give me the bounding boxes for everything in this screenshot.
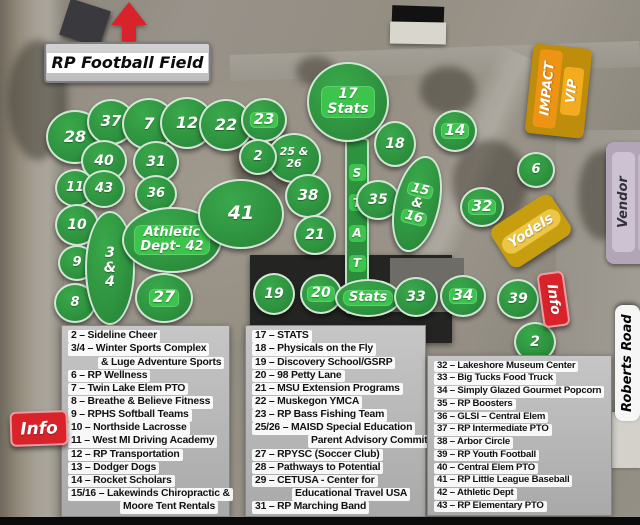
legend-entry: Moore Tent Rentals — [68, 501, 225, 514]
booth-label: 41 — [228, 204, 254, 224]
legend-entry: 14 – Rocket Scholars — [68, 475, 225, 488]
legend-entry: 18 – Physicals on the Fly — [252, 343, 421, 356]
legend-entry: 7 – Twin Lake Elem PTO — [68, 383, 225, 396]
booth-label: 16 — [399, 208, 428, 228]
legend-entry: 8 – Breathe & Believe Fitness — [68, 396, 225, 409]
booth-label: 11 — [66, 181, 84, 195]
booth-33: 33 — [394, 277, 438, 317]
vendor-label: Vendor — [612, 152, 635, 252]
booth-19: 19 — [253, 273, 295, 315]
booth-label: 20 — [307, 286, 334, 302]
north-arrow-icon — [111, 2, 147, 42]
roberts-road-sign: Roberts Road — [615, 305, 640, 421]
booth-label: 39 — [508, 292, 527, 307]
legend-entry: 33 – Big Tucks Food Truck — [434, 373, 607, 386]
booth-label: 38 — [298, 188, 319, 204]
booth-label: 35 — [368, 193, 387, 208]
booth-label: 22 — [215, 117, 237, 134]
info-marker-left: Info — [9, 410, 68, 447]
legend-panel-2: 17 – STATS18 – Physicals on the Fly19 – … — [245, 325, 426, 517]
booth-label: 34 — [449, 288, 478, 305]
legend-entry: 38 – Arbor Circle — [434, 437, 607, 450]
legend-entry: 3/4 – Winter Sports Complex — [68, 343, 225, 356]
legend-entry: 34 – Simply Glazed Gourmet Popcorn — [434, 386, 607, 399]
booth-label: 4 — [105, 275, 115, 290]
booth-label: 23 — [250, 112, 279, 129]
booth-label: 10 — [67, 218, 86, 233]
booth-label: 17Stats — [321, 86, 374, 118]
booth-stats-south: Stats — [335, 279, 401, 317]
booth-6: 6 — [517, 152, 555, 188]
legend-entry: 11 – West MI Driving Academy — [68, 435, 225, 448]
arrow-shaft — [122, 25, 136, 41]
booth-label: 32 — [468, 199, 497, 216]
legend-entry: 10 – Northside Lacrosse — [68, 422, 225, 435]
legend-panel-3: 32 – Lakeshore Museum Center33 – Big Tuc… — [427, 355, 612, 516]
legend-entry: 20 – 98 Petty Lane — [252, 369, 421, 382]
legend-entry: 21 – MSU Extension Programs — [252, 383, 421, 396]
booth-label: & — [104, 261, 116, 276]
legend-entry: 6 – RP Wellness — [68, 369, 225, 382]
football-field-sign: RP Football Field — [44, 42, 211, 83]
booth-label: 8 — [70, 296, 79, 310]
legend-entry: 27 – RPYSC (Soccer Club) — [252, 448, 421, 461]
booth-label: 26 — [286, 158, 301, 170]
impact-label: IMPACT — [532, 49, 563, 129]
booth-label: 12 — [176, 115, 198, 132]
arrow-head — [111, 2, 147, 25]
legend-entry: 13 – Dodger Dogs — [68, 461, 225, 474]
booth-label: 31 — [146, 155, 165, 170]
booth-21: 21 — [294, 215, 336, 255]
legend-entry: 9 – RPHS Softball Teams — [68, 409, 225, 422]
booth-label: 43 — [95, 182, 113, 196]
legend-entry: 37 – RP Intermediate PTO — [434, 424, 607, 437]
booth-label: 9 — [72, 256, 81, 270]
legend-entry: 28 – Pathways to Potential — [252, 461, 421, 474]
legend-entry: 25/26 – MAISD Special Education — [252, 422, 421, 435]
booth-label: 6 — [531, 163, 540, 177]
booth-39: 39 — [497, 279, 539, 319]
booth-label: 18 — [385, 137, 404, 152]
legend-entry: & Luge Adventure Sports — [68, 356, 225, 369]
legend-entry: 41 – RP Little League Baseball — [434, 475, 607, 488]
booth-27: 27 — [135, 273, 193, 323]
booth-18: 18 — [374, 121, 416, 167]
booth-34: 34 — [440, 275, 486, 317]
booth-label: 3 — [105, 246, 115, 261]
legend-entry: 12 – RP Transportation — [68, 448, 225, 461]
legend-entry: 17 – STATS — [252, 330, 421, 343]
booth-label: 2 — [253, 150, 262, 164]
booth-label: 37 — [101, 114, 122, 130]
legend-entry: 43 – RP Elementary PTO — [434, 500, 607, 513]
legend-entry: 29 – CETUSA - Center for — [252, 475, 421, 488]
booth-32: 32 — [460, 187, 504, 227]
legend-entry: 31 – RP Marching Band — [252, 501, 421, 514]
bottom-bar — [0, 517, 640, 525]
booth-label: Stats — [343, 290, 393, 307]
legend-entry: 22 – Muskegon YMCA — [252, 396, 421, 409]
booth-label: 14 — [441, 123, 470, 140]
legend-entry: 36 – GLSI – Central Elem — [434, 411, 607, 424]
legend-entry: 42 – Athletic Dept — [434, 488, 607, 501]
booth-41: 41 — [198, 179, 284, 249]
booth-label: 19 — [264, 287, 283, 302]
legend-entry: 19 – Discovery School/GSRP — [252, 356, 421, 369]
booth-label: 7 — [143, 116, 154, 133]
event-map: STATS 28377122223403125 &26211433610983&… — [0, 0, 640, 525]
legend-entry: Educational Travel USA — [252, 488, 421, 501]
legend-entry: 35 – RP Boosters — [434, 398, 607, 411]
booth-14: 14 — [433, 110, 477, 152]
legend-entry: 39 – RP Youth Football — [434, 449, 607, 462]
legend-entry: 32 – Lakeshore Museum Center — [434, 360, 607, 373]
booth-label: 2 — [530, 335, 540, 350]
booth-label: 28 — [64, 129, 86, 146]
booth-label: 27 — [149, 289, 179, 307]
impact-vip-sign: IMPACT VIP — [524, 43, 592, 139]
booth-2: 2 — [239, 139, 277, 175]
vip-label: VIP — [560, 67, 585, 117]
booth-label: 21 — [305, 228, 324, 243]
legend-entry: 23 – RP Bass Fishing Team — [252, 409, 421, 422]
booth-label: AthleticDept- 42 — [134, 225, 209, 255]
legend-entry: 2 – Sideline Cheer — [68, 330, 225, 343]
booth-43: 43 — [83, 170, 125, 208]
legend-panel-1: 2 – Sideline Cheer3/4 – Winter Sports Co… — [61, 325, 230, 517]
legend-entry: Parent Advisory Committee — [252, 435, 421, 448]
legend-entry: 40 – Central Elem PTO — [434, 462, 607, 475]
booth-38: 38 — [285, 174, 331, 218]
vendor-sign: Vendor — [606, 142, 640, 264]
football-field-label: RP Football Field — [47, 53, 209, 73]
booth-label: 40 — [94, 154, 113, 169]
booth-label: 36 — [147, 187, 165, 201]
legend-entry: 15/16 – Lakewinds Chiropractic & — [68, 488, 225, 501]
booth-label: 33 — [406, 290, 425, 305]
